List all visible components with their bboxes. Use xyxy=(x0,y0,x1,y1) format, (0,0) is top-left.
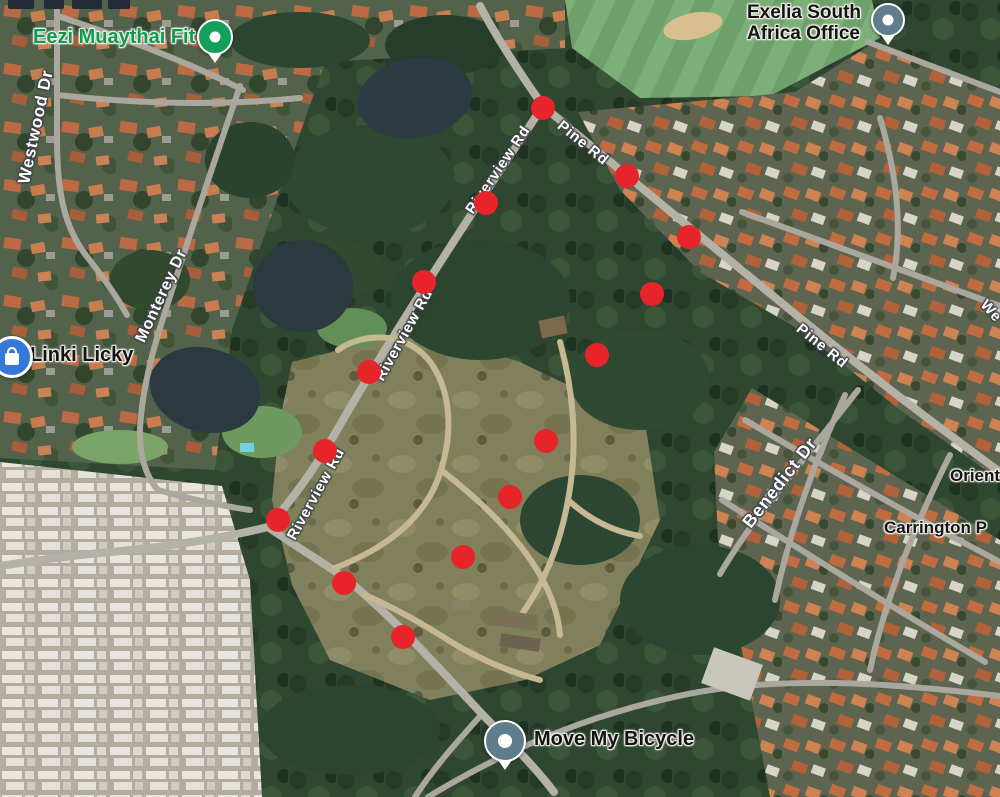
place-label-carrington-partial[interactable]: Carrington P xyxy=(884,518,987,538)
route-marker-dot-13[interactable] xyxy=(640,282,664,306)
pin-tail xyxy=(208,53,222,63)
pin-center-dot xyxy=(498,734,512,748)
route-marker-dot-7[interactable] xyxy=(332,571,356,595)
place-label-linki-licky[interactable]: Linki Licky xyxy=(30,344,133,367)
satellite-map-viewport[interactable]: Westwood Dr Monterey Dr Riverview Rd Riv… xyxy=(0,0,1000,797)
route-marker-dot-4[interactable] xyxy=(357,360,381,384)
route-marker-dot-1[interactable] xyxy=(531,96,555,120)
clipped-label-fragment xyxy=(72,0,102,9)
place-label-exelia-south-africa-office[interactable]: Exelia South Africa Office xyxy=(747,2,861,44)
satellite-imagery xyxy=(0,0,1000,797)
place-label-orient-partial[interactable]: Orient xyxy=(950,466,1000,486)
route-marker-dot-14[interactable] xyxy=(677,225,701,249)
route-marker-dot-8[interactable] xyxy=(391,625,415,649)
route-marker-dot-2[interactable] xyxy=(474,191,498,215)
clipped-label-fragment xyxy=(44,0,64,9)
route-marker-dot-5[interactable] xyxy=(313,439,337,463)
pin-center-dot xyxy=(883,15,894,26)
route-marker-dot-10[interactable] xyxy=(498,485,522,509)
exelia-label-line1: Exelia South xyxy=(747,2,861,23)
exelia-office-place-pin-icon[interactable] xyxy=(871,3,905,37)
eezi-muaythai-place-pin-icon[interactable] xyxy=(197,19,233,55)
route-marker-dot-12[interactable] xyxy=(585,343,609,367)
place-label-move-my-bicycle[interactable]: Move My Bicycle xyxy=(534,728,694,751)
pin-center-dot xyxy=(210,32,221,43)
route-marker-dot-11[interactable] xyxy=(534,429,558,453)
route-marker-dot-9[interactable] xyxy=(451,545,475,569)
place-label-eezi-muaythai-fit[interactable]: Eezi Muaythai Fit xyxy=(33,26,195,49)
route-marker-dot-3[interactable] xyxy=(412,270,436,294)
pin-tail xyxy=(881,35,895,45)
clipped-label-fragment xyxy=(8,0,34,9)
route-marker-dot-15[interactable] xyxy=(615,164,639,188)
pin-tail xyxy=(498,760,512,770)
move-my-bicycle-place-pin-icon[interactable] xyxy=(484,720,526,762)
clipped-label-fragment xyxy=(108,0,130,9)
shopping-bag-glyph xyxy=(5,353,19,365)
exelia-label-line2: Africa Office xyxy=(747,23,861,44)
route-marker-dot-6[interactable] xyxy=(266,508,290,532)
